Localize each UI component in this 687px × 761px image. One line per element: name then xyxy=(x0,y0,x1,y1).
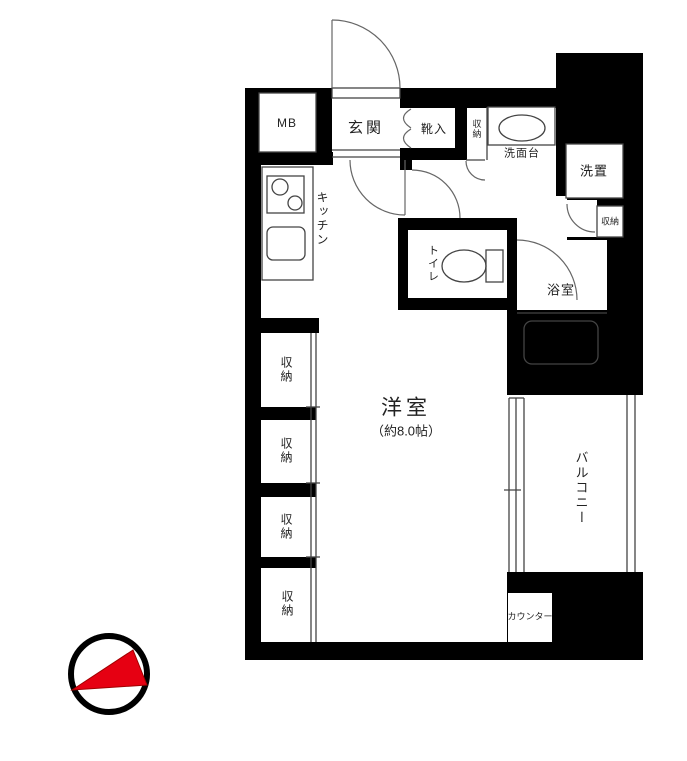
floor-plan-drawing xyxy=(0,0,687,761)
washroom-storage-label: 収納 xyxy=(601,218,619,227)
closet-label: 収納 xyxy=(280,437,292,465)
living-room-size-label: （約8.0帖） xyxy=(371,425,441,438)
floor-plan: MB 玄関 靴入 収納 洗面台 洗置 収納 キッチン トイレ 浴室 洋室 （約8… xyxy=(0,0,687,761)
entrance-door-arc xyxy=(332,20,400,88)
shoe-box-label: 靴入 xyxy=(421,123,447,135)
bathroom-label: 浴室 xyxy=(547,284,575,297)
kitchen-label: キッチン xyxy=(316,191,328,247)
closet-label: 収納 xyxy=(280,513,292,541)
balcony-label: バルコニー xyxy=(575,451,588,526)
north-arrow-icon xyxy=(71,636,147,712)
hall-storage-label: 収納 xyxy=(472,119,481,139)
counter-label: カウンター xyxy=(507,613,552,622)
toilet-label: トイレ xyxy=(427,245,438,284)
closet-label: 収納 xyxy=(280,356,292,384)
washer-label: 洗置 xyxy=(580,165,608,178)
washbasin-label: 洗面台 xyxy=(504,149,540,160)
closet-label: 収納 xyxy=(281,590,293,618)
living-room-label: 洋室 xyxy=(381,398,431,419)
mb-label: MB xyxy=(277,117,297,129)
entrance-label: 玄関 xyxy=(348,121,384,136)
